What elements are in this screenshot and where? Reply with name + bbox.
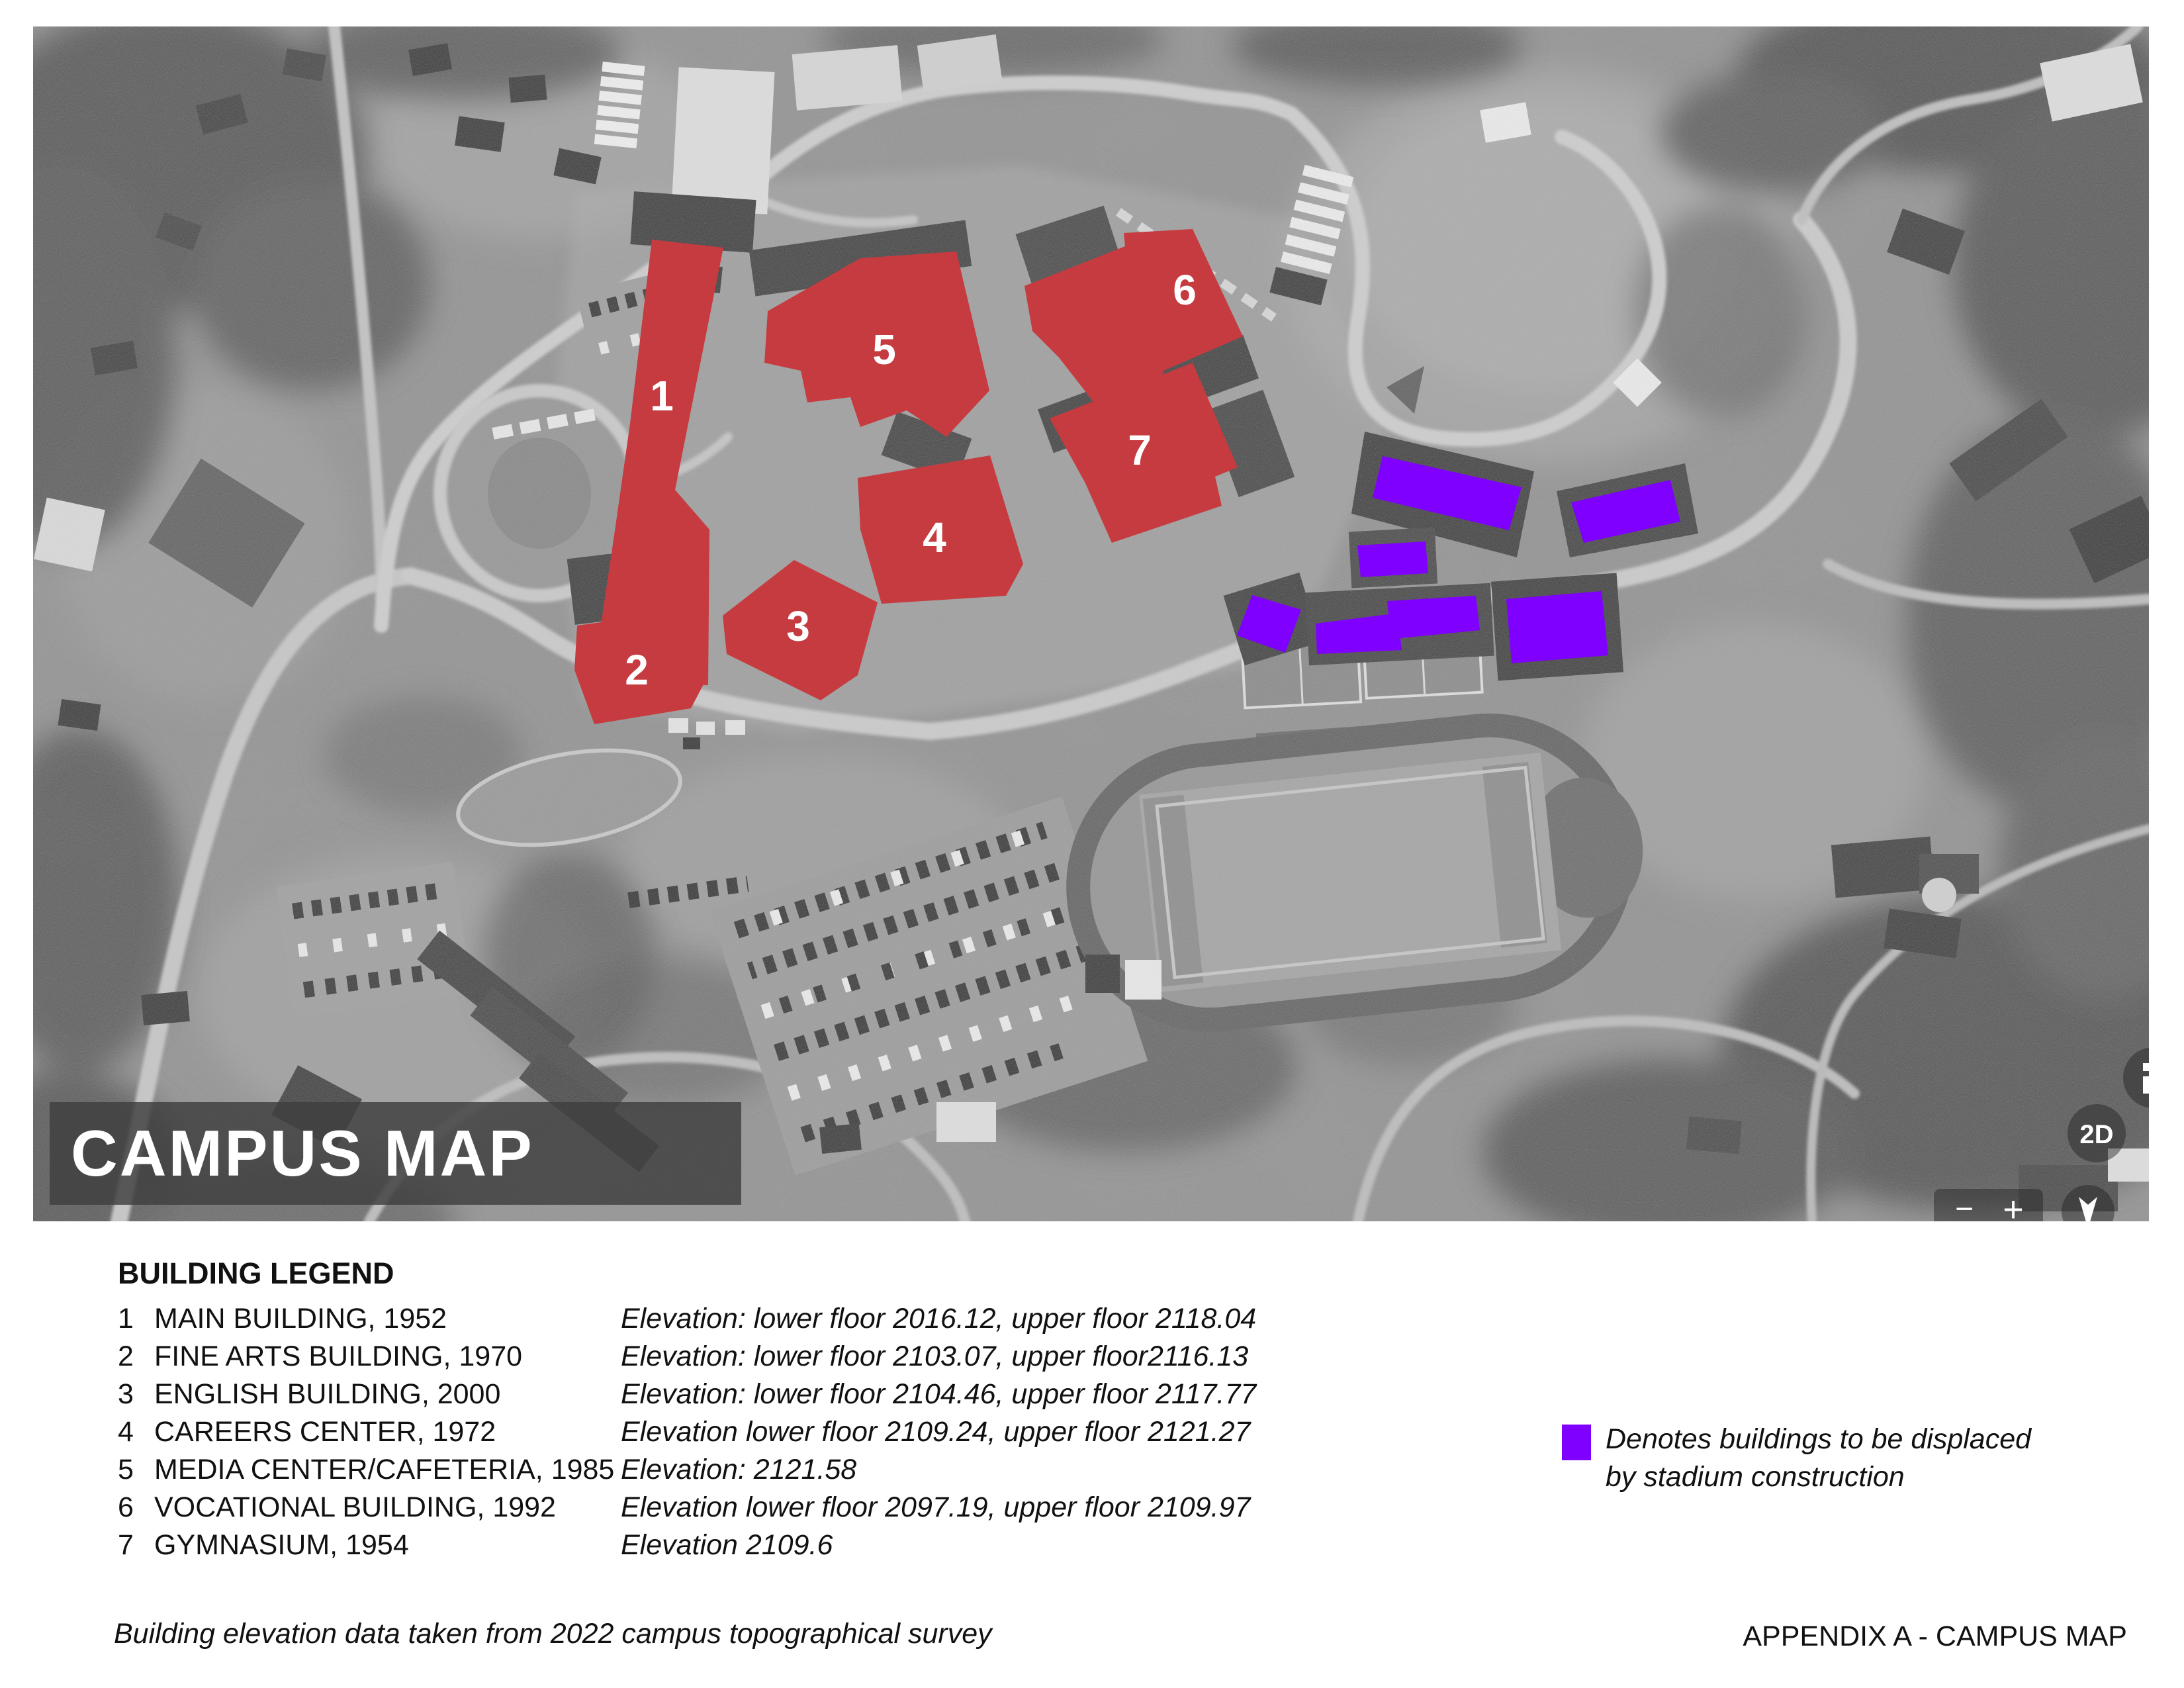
building-legend: BUILDING LEGEND 1 MAIN BUILDING, 1952 El… bbox=[118, 1256, 1256, 1564]
map-zoom-control bbox=[1934, 1189, 2043, 1221]
legend-building-number: 2 bbox=[118, 1340, 154, 1373]
legend-building-name: ENGLISH BUILDING, 2000 bbox=[154, 1378, 621, 1411]
map-layers-icon bbox=[2143, 1076, 2149, 1094]
building-6-label: 6 bbox=[1173, 266, 1197, 314]
legend-row: 1 MAIN BUILDING, 1952 Elevation: lower f… bbox=[118, 1300, 1256, 1338]
building-5-label: 5 bbox=[872, 326, 896, 373]
legend-row: 4 CAREERS CENTER, 1972 Elevation lower f… bbox=[118, 1413, 1256, 1451]
legend-building-name: GYMNASIUM, 1954 bbox=[154, 1529, 621, 1562]
legend-row: 7 GYMNASIUM, 1954 Elevation 2109.6 bbox=[118, 1526, 1256, 1564]
legend-building-number: 6 bbox=[118, 1491, 154, 1524]
map-2d-button-label: 2D bbox=[2079, 1120, 2113, 1149]
legend-row: 6 VOCATIONAL BUILDING, 1992 Elevation lo… bbox=[118, 1489, 1256, 1526]
legend-building-number: 3 bbox=[118, 1378, 154, 1411]
legend-building-name: MEDIA CENTER/CAFETERIA, 1985 bbox=[154, 1454, 621, 1486]
legend-building-elevation: Elevation lower floor 2109.24, upper flo… bbox=[621, 1416, 1250, 1448]
legend-building-elevation: Elevation: lower floor 2104.46, upper fl… bbox=[621, 1378, 1256, 1411]
legend-building-elevation: Elevation lower floor 2097.19, upper flo… bbox=[621, 1491, 1250, 1524]
legend-heading: BUILDING LEGEND bbox=[118, 1256, 1256, 1291]
displaced-note-line1: Denotes buildings to be displaced bbox=[1606, 1421, 2031, 1458]
building-7-label: 7 bbox=[1128, 426, 1152, 474]
legend-building-name: FINE ARTS BUILDING, 1970 bbox=[154, 1340, 621, 1373]
map-title-banner: CAMPUS MAP bbox=[50, 1102, 741, 1205]
zoom-out-icon: − bbox=[1955, 1192, 1974, 1221]
displaced-note-line2: by stadium construction bbox=[1606, 1458, 2031, 1496]
map-title: CAMPUS MAP bbox=[71, 1116, 534, 1191]
legend-row: 5 MEDIA CENTER/CAFETERIA, 1985 Elevation… bbox=[118, 1451, 1256, 1489]
legend-building-name: VOCATIONAL BUILDING, 1992 bbox=[154, 1491, 621, 1524]
legend-building-number: 7 bbox=[118, 1529, 154, 1562]
legend-building-elevation: Elevation: lower floor 2103.07, upper fl… bbox=[621, 1340, 1248, 1373]
legend-building-name: MAIN BUILDING, 1952 bbox=[154, 1303, 621, 1335]
displaced-building-highlight bbox=[1357, 541, 1428, 577]
legend-building-name: CAREERS CENTER, 1972 bbox=[154, 1416, 621, 1448]
zoom-in-icon: + bbox=[2003, 1190, 2024, 1221]
appendix-label: APPENDIX A - CAMPUS MAP bbox=[1743, 1620, 2127, 1653]
displaced-color-swatch bbox=[1562, 1425, 1591, 1460]
elevation-source-note: Building elevation data taken from 2022 … bbox=[114, 1618, 992, 1650]
legend-building-elevation: Elevation: lower floor 2016.12, upper fl… bbox=[621, 1303, 1256, 1335]
legend-building-elevation: Elevation 2109.6 bbox=[621, 1529, 833, 1562]
building-2-label: 2 bbox=[625, 646, 649, 694]
page: { "banner": { "title": "CAMPUS MAP" }, "… bbox=[0, 0, 2184, 1688]
displaced-building-highlight bbox=[1506, 591, 1608, 663]
legend-building-number: 1 bbox=[118, 1303, 154, 1335]
displaced-note-text: Denotes buildings to be displaced by sta… bbox=[1606, 1421, 2031, 1496]
legend-row: 3 ENGLISH BUILDING, 2000 Elevation: lowe… bbox=[118, 1376, 1256, 1413]
legend-row: 2 FINE ARTS BUILDING, 1970 Elevation: lo… bbox=[118, 1338, 1256, 1376]
legend-building-number: 4 bbox=[118, 1416, 154, 1448]
photo-grain bbox=[33, 26, 2149, 1221]
displaced-note: Denotes buildings to be displaced by sta… bbox=[1562, 1421, 2031, 1496]
legend-building-number: 5 bbox=[118, 1454, 154, 1486]
building-3-label: 3 bbox=[786, 602, 810, 650]
building-1-label: 1 bbox=[650, 372, 674, 420]
building-4-label: 4 bbox=[923, 514, 946, 561]
map-layers-icon bbox=[2143, 1063, 2149, 1071]
campus-aerial-map: 1 2 3 4 5 6 7 2D − + CAMPUS MAP bbox=[33, 26, 2149, 1221]
legend-building-elevation: Elevation: 2121.58 bbox=[621, 1454, 856, 1486]
aerial-photo: 1 2 3 4 5 6 7 2D − + bbox=[33, 26, 2149, 1221]
